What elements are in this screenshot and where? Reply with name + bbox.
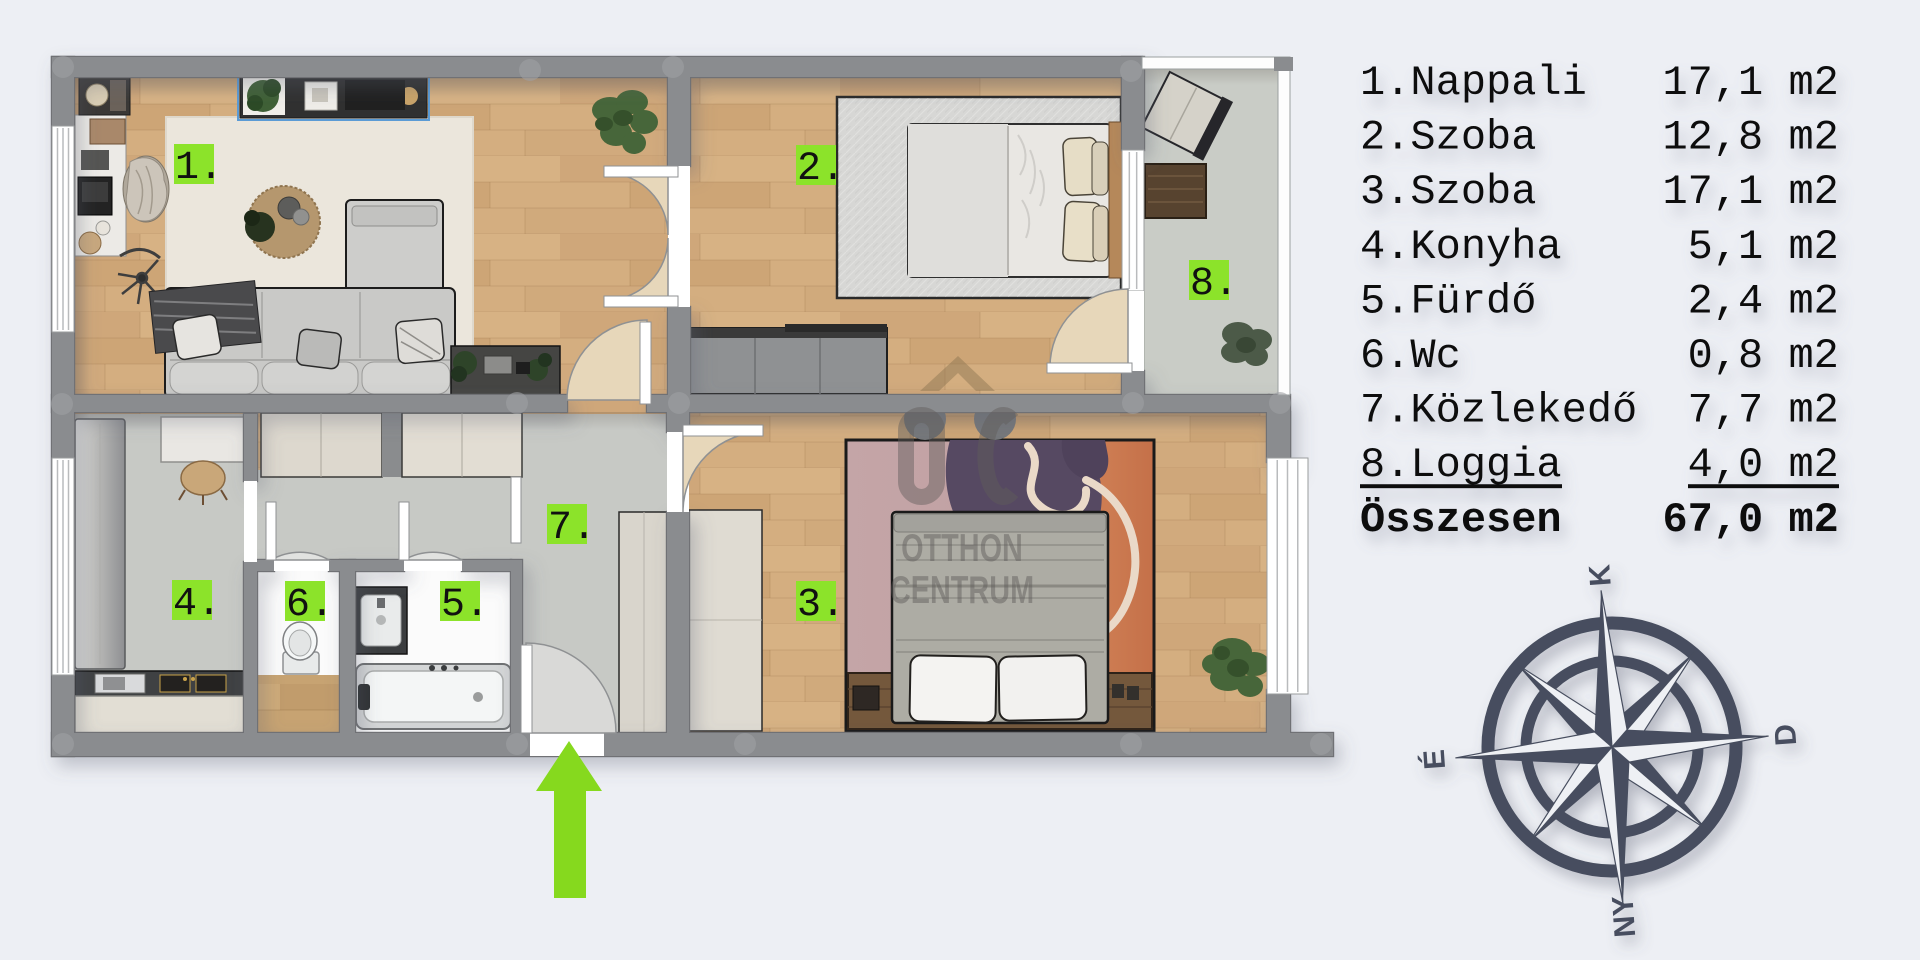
svg-text:6.: 6. <box>286 583 334 628</box>
svg-text:2.Szoba 12,8 m2: 2.Szoba 12,8 m2 <box>1360 114 1839 162</box>
svg-text:4.Konyha 5,1 m2: 4.Konyha 5,1 m2 <box>1360 223 1839 271</box>
svg-text:3.: 3. <box>797 583 845 628</box>
svg-text:K: K <box>1583 563 1617 587</box>
svg-text:1.: 1. <box>175 146 223 191</box>
svg-text:OTTHON: OTTHON <box>901 527 1023 570</box>
svg-text:8.: 8. <box>1190 262 1238 307</box>
svg-text:NY: NY <box>1606 895 1642 939</box>
svg-text:7.: 7. <box>548 506 596 551</box>
svg-text:5.: 5. <box>441 583 489 628</box>
svg-text:5.Fürdő 2,4 m2: 5.Fürdő 2,4 m2 <box>1360 277 1839 325</box>
svg-text:7.Közlekedő 7,7 m2: 7.Közlekedő 7,7 m2 <box>1360 387 1839 435</box>
svg-text:4.: 4. <box>173 582 221 627</box>
svg-text:D: D <box>1769 723 1803 747</box>
svg-text:CENTRUM: CENTRUM <box>890 569 1034 612</box>
svg-text:2.: 2. <box>797 147 845 192</box>
svg-text:Összesen 67,0 m2: Összesen 67,0 m2 <box>1360 496 1839 544</box>
svg-text:6.Wc 0,8 m2: 6.Wc 0,8 m2 <box>1360 332 1839 380</box>
svg-text:1.Nappali 17,1 m2: 1.Nappali 17,1 m2 <box>1360 59 1839 107</box>
svg-text:8.Loggia 4,0 m2: 8.Loggia 4,0 m2 <box>1360 441 1839 489</box>
svg-text:É: É <box>1417 748 1452 770</box>
svg-text:3.Szoba 17,1 m2: 3.Szoba 17,1 m2 <box>1360 168 1839 216</box>
